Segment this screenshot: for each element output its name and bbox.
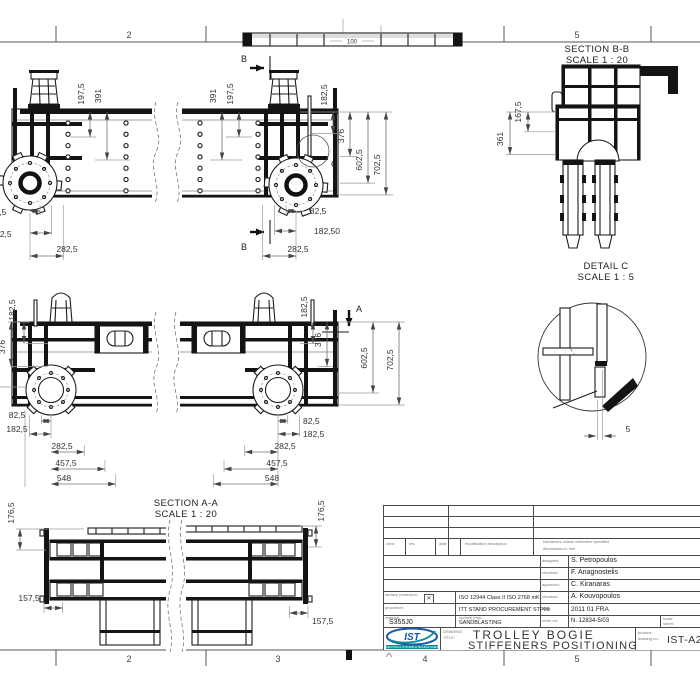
dim: 182,5	[299, 296, 309, 318]
tb-header-modification: modification description	[465, 542, 507, 546]
dim: 282,5	[274, 441, 296, 451]
section-bb-dimensions: 167,5 361	[495, 101, 556, 155]
ist-logo-tagline: INDUSTRIAL SYSTEMS & TECHNOLOGIES	[386, 645, 438, 649]
dim: 82,5	[0, 207, 7, 217]
caret-mark	[386, 653, 392, 657]
dim: 157,5	[312, 616, 334, 626]
zone-top-2: 2	[126, 30, 131, 40]
dim: 282,5	[287, 244, 309, 254]
wheel-hub-left	[26, 365, 76, 415]
leg-right	[592, 160, 618, 248]
tb-spec-sandblasting: SANDBLASTING	[459, 620, 501, 626]
section-aa-view: SECTION A-A SCALE 1 : 20	[6, 498, 334, 652]
slot-plate-right	[192, 326, 245, 353]
mast-right-outline	[253, 293, 275, 322]
elevation-view-top: C B B 197,5 391 391 197,5	[0, 54, 393, 260]
zone-bottom-3: 3	[275, 654, 280, 664]
centering-mark	[346, 650, 352, 660]
dim: 376	[0, 340, 7, 354]
dim: 176,5	[6, 502, 16, 524]
tb-name-designed: S. Petropoulos	[571, 557, 617, 564]
tb-label-order: order no:	[542, 619, 558, 623]
strip-dim-100: 100	[347, 40, 358, 46]
detail-c-title: DETAIL C	[584, 261, 629, 272]
tb-spec-procurement: ITT STAND PROCUREMENT STP09	[459, 607, 550, 613]
dim: 182,5	[7, 299, 17, 321]
dim: 5	[626, 424, 631, 434]
title-block: zone rev. date modification description …	[383, 505, 700, 650]
detail-c-scale: SCALE 1 : 5	[578, 272, 635, 283]
dim: 197,5	[225, 83, 235, 105]
dim: 182,5	[0, 229, 12, 239]
section-aa-title: SECTION A-A	[154, 498, 219, 509]
dim: 167,5	[513, 101, 523, 123]
tb-name-checked: F. Anagnostelis	[571, 569, 618, 576]
tb-num-label-1: product:	[638, 631, 652, 635]
dim: 182,50	[314, 226, 340, 236]
tb-title-label-2: TITLE:	[443, 636, 455, 640]
section-bb-view: SECTION B-B SCALE 1 : 20	[495, 44, 678, 248]
dim: 197,5	[76, 83, 86, 105]
tb-label-sheet: sheet:	[663, 622, 674, 626]
cut-label-a: A	[356, 304, 362, 314]
section-bb-scale: SCALE 1 : 20	[566, 55, 628, 66]
tb-label-surface: surface protection:	[385, 593, 421, 597]
detail-c-view: DETAIL C SCALE 1 : 5 5	[538, 261, 646, 440]
ist-logo: IST INDUSTRIAL SYSTEMS & TECHNOLOGIES	[385, 628, 439, 649]
tb-value-order: N. 12834-5/03	[571, 618, 609, 624]
tb-value-date: 2011 01 FRA	[571, 606, 609, 613]
wheel-hub-right	[253, 365, 303, 415]
tb-label-designed: designed:	[542, 559, 559, 563]
ist-logo-text: IST	[404, 632, 420, 643]
dim: 602,5	[359, 347, 369, 369]
tb-label-checked: checked:	[542, 571, 558, 575]
detail-c-ref-label: C	[331, 159, 338, 169]
tb-label-approved: approved:	[542, 583, 560, 587]
plan-strip-view: 100	[243, 19, 462, 46]
dim: 82,5	[310, 206, 327, 216]
dim: 182,5	[6, 424, 28, 434]
zone-bottom-2: 2	[126, 654, 131, 664]
tb-label-released: released:	[542, 595, 558, 599]
dim: 157,5	[18, 593, 40, 603]
drawing-title-line2: STIFFENERS POSITIONING	[468, 640, 638, 652]
dim: 391	[93, 89, 103, 103]
section-bb-title: SECTION B-B	[564, 44, 629, 55]
tb-header-rev: rev.	[409, 542, 415, 546]
dim: 376	[336, 129, 346, 143]
dim: 457,5	[266, 458, 288, 468]
dim: 548	[57, 473, 71, 483]
zone-top-5: 5	[574, 30, 579, 40]
tb-label-procedure: procedure:	[385, 606, 404, 610]
dim: 182,5	[319, 84, 329, 106]
cut-label-b-top: B	[241, 54, 247, 64]
tb-spec-iso: ISO 12944 Class II ISO 2768 mK	[459, 595, 540, 601]
tb-name-released: A. Kouvopoulos	[571, 593, 620, 600]
tb-material-value: S355J0	[389, 619, 413, 626]
dim: 702,5	[372, 154, 382, 176]
mast-left	[28, 70, 60, 110]
leg-left	[560, 160, 586, 248]
dim: 602,5	[354, 149, 364, 171]
dim: 548	[265, 473, 279, 483]
drawing-number: IST-A23	[667, 634, 700, 646]
dim: 457,5	[55, 458, 77, 468]
dim: 176,5	[316, 500, 326, 522]
mast-left-outline	[50, 293, 72, 322]
tb-num-label-2: drawing no:	[638, 637, 659, 641]
elevation-view-bottom: A 182,5 376 182,5 376 602,5 702,5	[0, 293, 405, 487]
tb-header-tolerances: tolerances unless otherwise specified	[543, 540, 609, 544]
dim: 702,5	[385, 349, 395, 371]
tb-header-date: date	[439, 542, 447, 546]
dim: 282,5	[51, 441, 73, 451]
drawing-sheet: 2 5 2 3 4 5 100	[0, 0, 700, 700]
slot-plate-left	[95, 326, 148, 353]
zone-bottom-5: 5	[574, 654, 579, 664]
dim: 391	[208, 89, 218, 103]
dim: 182,5	[303, 429, 325, 439]
dim: 361	[495, 132, 505, 146]
tb-name-approved: C. Kiranaras	[571, 581, 610, 588]
projection-symbol: ✕	[424, 594, 434, 604]
dim: 282,5	[56, 244, 78, 254]
dim: 376	[313, 333, 323, 347]
tb-title-label-1: DRAWING	[443, 630, 462, 634]
tb-header-zone: zone	[386, 542, 395, 546]
mast-right	[268, 70, 300, 110]
cut-label-b-bottom: B	[241, 242, 247, 252]
tb-header-units: dimensions in mm	[543, 547, 575, 551]
dim: 82,5	[9, 410, 26, 420]
dim: 82,5	[303, 416, 320, 426]
zone-bottom-4: 4	[422, 654, 427, 664]
